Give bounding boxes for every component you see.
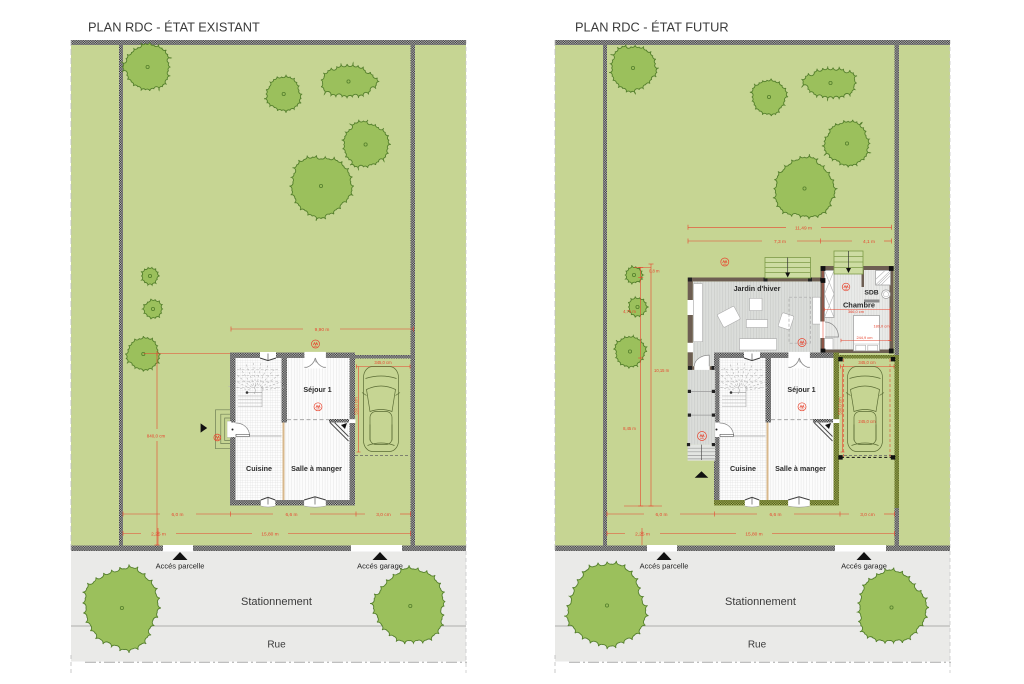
svg-text:8,45 m: 8,45 m (623, 426, 636, 431)
svg-text:15,80 m: 15,80 m (745, 532, 762, 538)
svg-text:3,0 cm: 3,0 cm (376, 512, 390, 518)
svg-text:366,0 cm: 366,0 cm (848, 309, 864, 314)
svg-text:3,0 cm: 3,0 cm (860, 512, 874, 518)
svg-text:9,90 m: 9,90 m (315, 327, 330, 333)
svg-text:0,8 m: 0,8 m (649, 269, 660, 274)
svg-text:6,0 m: 6,0 m (656, 512, 668, 518)
svg-text:Jardin d'hiver: Jardin d'hiver (734, 284, 781, 293)
svg-text:Rue: Rue (267, 640, 286, 651)
svg-text:7,3 m: 7,3 m (774, 239, 786, 245)
svg-text:Accés parcelle: Accés parcelle (640, 562, 689, 571)
svg-text:244,9 cm: 244,9 cm (856, 335, 872, 340)
svg-text:10,15 m: 10,15 m (654, 368, 670, 373)
svg-text:15,80 m: 15,80 m (261, 532, 278, 538)
svg-text:Cuisine: Cuisine (730, 464, 756, 473)
svg-text:4,75 m: 4,75 m (623, 309, 636, 314)
svg-text:Rue: Rue (748, 640, 767, 651)
svg-text:Salle à manger: Salle à manger (291, 464, 342, 473)
svg-text:550,0 cm: 550,0 cm (354, 397, 359, 415)
svg-text:Stationnement: Stationnement (725, 596, 796, 608)
svg-text:345,0 cm: 345,0 cm (374, 360, 392, 365)
svg-text:6,6 m: 6,6 m (286, 512, 298, 518)
svg-text:6,6 m: 6,6 m (770, 512, 782, 518)
svg-text:Cuisine: Cuisine (246, 464, 272, 473)
svg-text:345,0 cm: 345,0 cm (858, 360, 876, 365)
svg-text:PLAN RDC - ÉTAT FUTUR: PLAN RDC - ÉTAT FUTUR (575, 20, 729, 35)
svg-text:180,0 cm: 180,0 cm (873, 324, 889, 329)
svg-text:245,0 cm: 245,0 cm (858, 419, 876, 424)
svg-text:PLAN RDC - ÉTAT EXISTANT: PLAN RDC - ÉTAT EXISTANT (88, 20, 260, 35)
svg-text:Stationnement: Stationnement (241, 596, 312, 608)
svg-text:840,0 cm: 840,0 cm (147, 434, 166, 439)
svg-text:2,25 m: 2,25 m (151, 532, 166, 538)
svg-text:4,1 m: 4,1 m (863, 239, 875, 245)
svg-text:Salle à manger: Salle à manger (775, 464, 826, 473)
svg-text:11,49 m: 11,49 m (795, 225, 812, 231)
svg-text:Séjour 1: Séjour 1 (787, 385, 815, 394)
svg-text:Accés parcelle: Accés parcelle (156, 562, 205, 571)
svg-text:Accés garage: Accés garage (357, 562, 403, 571)
svg-text:SDB: SDB (864, 289, 878, 296)
svg-text:Séjour 1: Séjour 1 (303, 385, 331, 394)
svg-text:2,25 m: 2,25 m (635, 532, 650, 538)
svg-text:550,0 cm: 550,0 cm (838, 397, 843, 415)
svg-text:Accés garage: Accés garage (841, 562, 887, 571)
svg-text:6,0 m: 6,0 m (172, 512, 184, 518)
